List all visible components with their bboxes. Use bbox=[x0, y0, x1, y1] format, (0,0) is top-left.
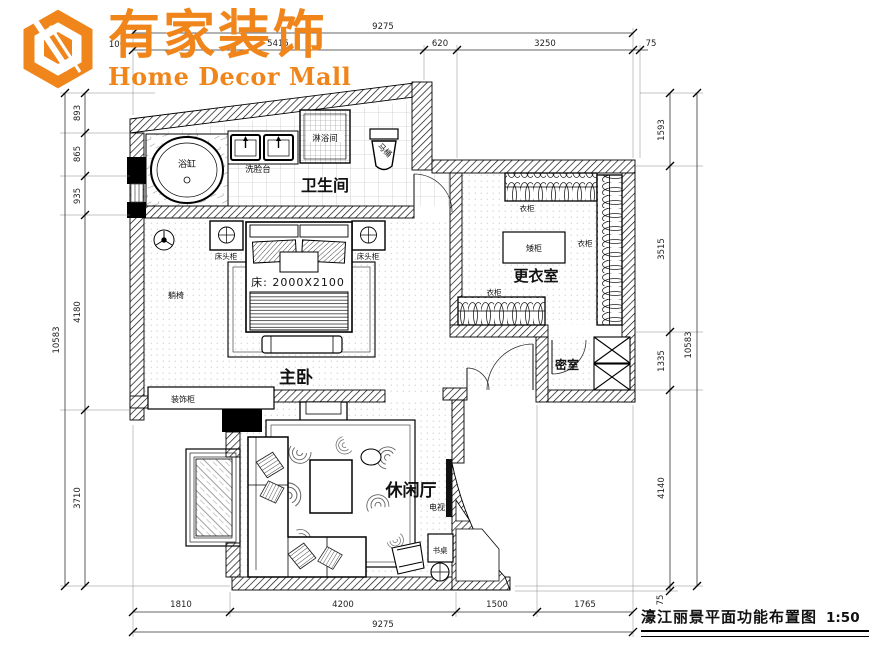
decor-cabinet-label: 装饰柜 bbox=[171, 394, 195, 404]
dim-right-4140: 4140 bbox=[657, 477, 667, 499]
sink-left bbox=[231, 135, 260, 160]
drawing-title: 濠江丽景平面功能布置图 bbox=[641, 608, 817, 626]
wall-bedroom-bottom-right bbox=[443, 388, 467, 400]
dim-right-75: 75 bbox=[656, 595, 666, 606]
wardrobe-bottom bbox=[458, 297, 545, 325]
dim-right-1593: 1593 bbox=[657, 119, 667, 141]
bedside-right-label: 床头柜 bbox=[357, 251, 380, 261]
pier-left-upper bbox=[127, 157, 146, 184]
bathtub-platform bbox=[146, 134, 228, 206]
bed-size-label: 床: 2000X2100 bbox=[251, 275, 345, 289]
bedside-cabinet-right bbox=[352, 221, 385, 250]
wall-bath-right bbox=[412, 82, 432, 170]
blanket bbox=[250, 292, 348, 330]
shower-label: 淋浴间 bbox=[312, 133, 338, 144]
bay-window bbox=[186, 449, 240, 546]
dim-bottom-4200: 4200 bbox=[332, 600, 354, 610]
lounge-chair-label: 躺椅 bbox=[168, 290, 184, 300]
ceiling-fan bbox=[154, 230, 174, 250]
dim-bottom-1500: 1500 bbox=[486, 600, 508, 610]
washstand-label: 洗脸台 bbox=[245, 164, 271, 175]
secret-shelves bbox=[594, 337, 630, 390]
bedside-cabinet-left bbox=[210, 221, 243, 250]
drawing-title-block: 濠江丽景平面功能布置图1:50 bbox=[641, 606, 869, 637]
master-bedroom-label: 主卧 bbox=[279, 367, 313, 388]
lounge-lamp-chair bbox=[392, 542, 424, 574]
tv-panel bbox=[446, 459, 452, 517]
vestibule-floor bbox=[414, 170, 450, 206]
pillow-center bbox=[280, 252, 318, 272]
wardrobe-top-label: 衣柜 bbox=[520, 203, 535, 213]
dim-bottom-1810: 1810 bbox=[170, 600, 192, 610]
dim-left-935: 935 bbox=[73, 188, 83, 204]
desk bbox=[428, 534, 453, 581]
dim-right-overall: 10583 bbox=[684, 331, 694, 358]
washstand bbox=[228, 131, 298, 164]
coffee-table bbox=[310, 460, 352, 513]
dim-right-3515: 3515 bbox=[657, 238, 667, 260]
dressing-room-label: 更衣室 bbox=[513, 267, 558, 285]
drawing-scale: 1:50 bbox=[826, 610, 860, 626]
wall-secret-left bbox=[536, 337, 548, 402]
wardrobe-right-label: 衣柜 bbox=[578, 238, 593, 248]
brand-logo: 有家装饰 Home Decor Mall bbox=[16, 6, 351, 90]
dim-bottom-overall: 9275 bbox=[372, 620, 394, 630]
headboard-right bbox=[300, 225, 348, 237]
ottoman bbox=[361, 449, 381, 465]
dim-left-865: 865 bbox=[73, 146, 83, 162]
headboard-left bbox=[250, 225, 298, 237]
dim-left-overall: 10583 bbox=[52, 326, 62, 353]
wall-leisure-west-lower bbox=[226, 543, 240, 577]
wall-bedroom-bottom-mid bbox=[262, 390, 385, 402]
dim-top-75: 75 bbox=[646, 39, 657, 49]
left-wall-window bbox=[131, 184, 143, 202]
bed-bench bbox=[262, 336, 342, 353]
bay-window-glass bbox=[196, 459, 232, 536]
floor-plan-drawing: 浴缸 洗脸台 淋浴间 马桶 卫生间 床头柜 床头柜 床: 2000X2100 躺… bbox=[0, 0, 880, 660]
wedge-niche-pentagon bbox=[456, 529, 499, 581]
brand-name-en: Home Decor Mall bbox=[108, 64, 351, 90]
dim-top-overall: 9275 bbox=[372, 22, 394, 32]
brand-name-cn: 有家装饰 bbox=[108, 8, 351, 64]
tv-label: 电视 bbox=[429, 502, 445, 512]
low-cabinet-label: 矮柜 bbox=[526, 243, 542, 253]
dim-left-3710: 3710 bbox=[73, 487, 83, 509]
bathtub-label: 浴缸 bbox=[178, 158, 196, 170]
wall-secret-bottom bbox=[548, 390, 635, 402]
desk-label: 书桌 bbox=[433, 545, 448, 555]
bathroom-label: 卫生间 bbox=[301, 176, 349, 195]
dim-left-893: 893 bbox=[73, 105, 83, 121]
title-underline bbox=[641, 630, 869, 637]
wardrobe-top bbox=[505, 173, 597, 201]
wall-dressing-bottom bbox=[450, 325, 548, 337]
decor-cabinet bbox=[148, 387, 274, 409]
sink-right bbox=[264, 135, 293, 160]
dim-bottom-1765: 1765 bbox=[574, 600, 596, 610]
wall-bath-divider bbox=[144, 206, 414, 218]
pier-left-lower bbox=[127, 202, 146, 218]
bathtub bbox=[151, 137, 223, 203]
dim-top-3250: 3250 bbox=[534, 39, 556, 49]
dim-left-4180: 4180 bbox=[73, 301, 83, 323]
brand-hexagon-icon bbox=[16, 6, 100, 90]
leisure-hall-label: 休闲厅 bbox=[385, 480, 437, 501]
wall-leisure-east bbox=[452, 400, 464, 463]
wall-dressing-top bbox=[432, 160, 635, 173]
dim-right-1335: 1335 bbox=[657, 350, 667, 372]
wardrobe-right bbox=[597, 175, 622, 325]
secret-room-label: 密室 bbox=[555, 357, 579, 372]
wardrobe-bottom-label: 衣柜 bbox=[487, 287, 502, 297]
bedside-left-label: 床头柜 bbox=[215, 251, 238, 261]
dim-top-620: 620 bbox=[432, 39, 448, 49]
